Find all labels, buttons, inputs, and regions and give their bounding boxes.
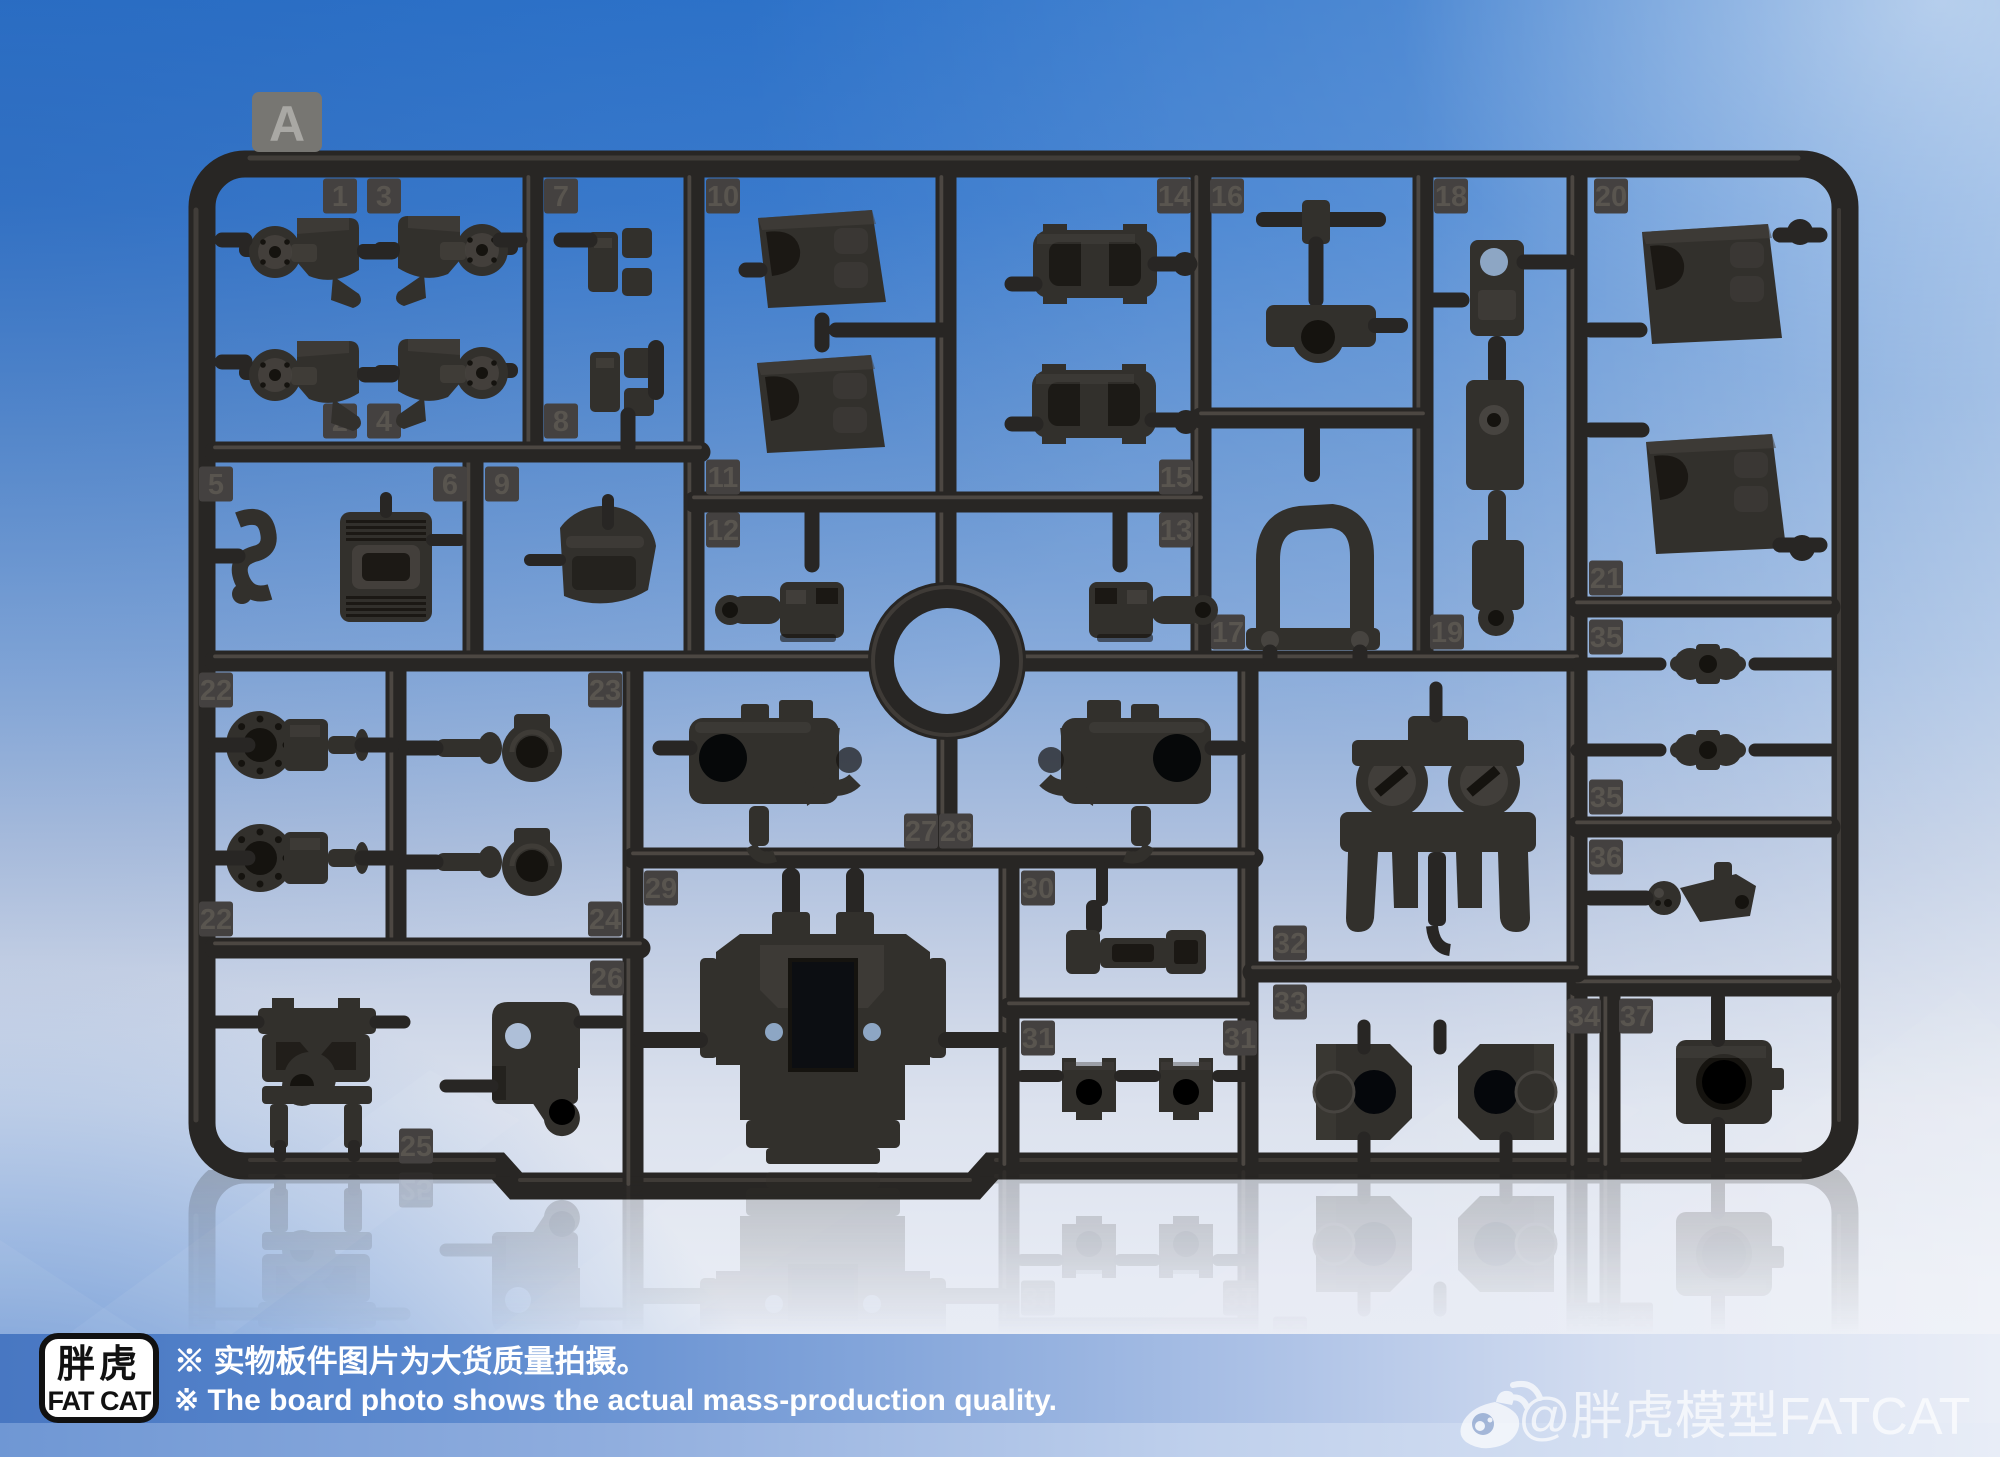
svg-text:※ The board photo shows the ac: ※ The board photo shows the actual mass-… [174,1384,1057,1417]
svg-text:@胖虎模型FATCAT: @胖虎模型FATCAT [1518,1388,1970,1446]
svg-text:19: 19 [1431,617,1463,649]
svg-text:21: 21 [1590,563,1622,595]
svg-text:8: 8 [553,406,569,438]
svg-text:18: 18 [1435,181,1467,213]
svg-text:10: 10 [707,181,739,213]
svg-text:1: 1 [332,181,348,213]
svg-text:35: 35 [1590,782,1622,814]
svg-text:36: 36 [1590,842,1622,874]
svg-text:29: 29 [645,873,677,905]
svg-text:胖虎: 胖虎 [57,1344,141,1386]
svg-text:26: 26 [591,963,623,995]
svg-text:23: 23 [589,675,621,707]
svg-text:9: 9 [494,469,510,501]
svg-text:※ 实物板件图片为大货质量拍摄。: ※ 实物板件图片为大货质量拍摄。 [174,1344,648,1379]
svg-text:37: 37 [1620,1001,1652,1033]
svg-text:31: 31 [1022,1023,1054,1055]
svg-text:7: 7 [553,181,569,213]
svg-text:31: 31 [1224,1023,1256,1055]
svg-text:17: 17 [1212,617,1244,649]
svg-text:34: 34 [1568,1001,1600,1033]
svg-text:A: A [269,96,305,152]
svg-text:22: 22 [200,904,232,936]
svg-text:22: 22 [200,675,232,707]
svg-text:30: 30 [1022,873,1054,905]
svg-text:3: 3 [376,181,392,213]
svg-text:35: 35 [1590,622,1622,654]
svg-text:27: 27 [905,816,937,848]
svg-text:14: 14 [1158,181,1190,213]
svg-text:33: 33 [1274,987,1306,1019]
svg-text:16: 16 [1211,181,1243,213]
svg-text:24: 24 [589,904,621,936]
svg-text:6: 6 [442,469,458,501]
svg-text:20: 20 [1595,181,1627,213]
svg-text:13: 13 [1160,515,1192,547]
svg-text:11: 11 [708,462,739,494]
svg-text:4: 4 [376,406,392,438]
svg-text:FAT CAT: FAT CAT [48,1386,152,1416]
svg-text:15: 15 [1160,462,1192,494]
svg-text:12: 12 [707,515,739,547]
svg-text:5: 5 [208,469,224,501]
svg-text:28: 28 [940,816,972,848]
svg-text:32: 32 [1274,928,1306,960]
